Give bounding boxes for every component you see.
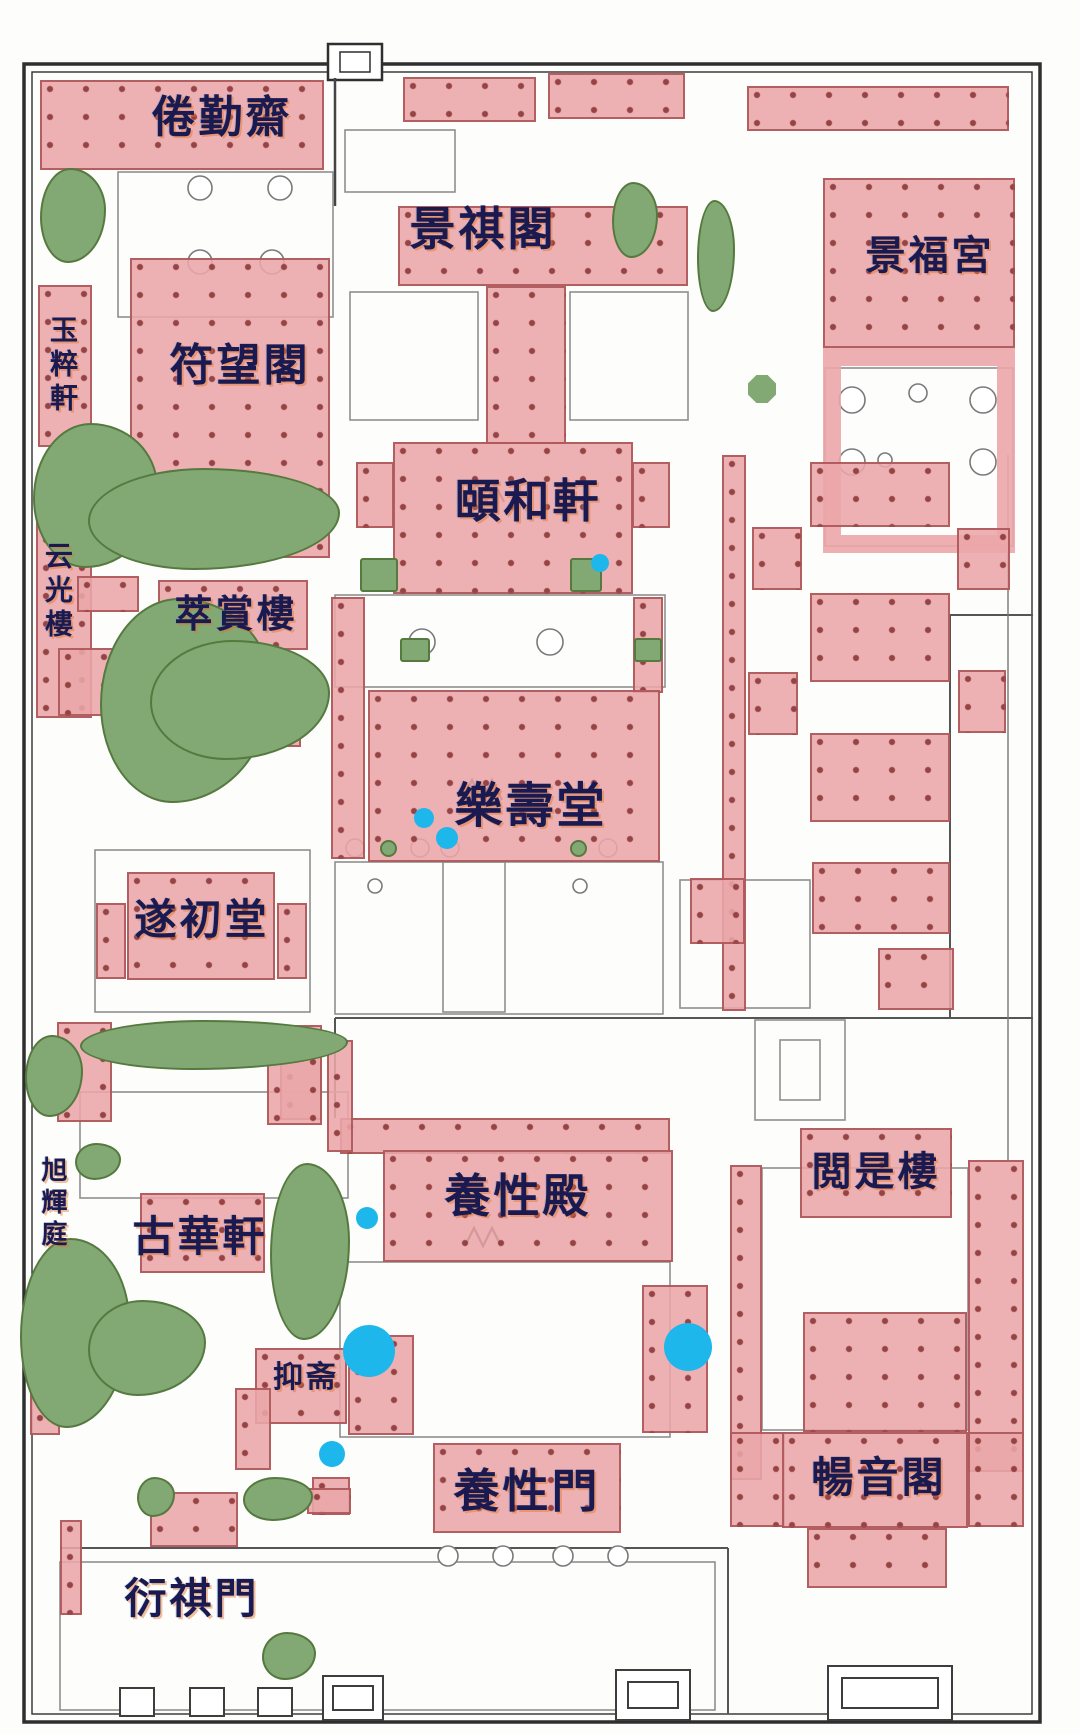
bld-yihe-west-wing [356,462,394,528]
bld-suichu-east [277,903,307,979]
bld-east-side-1 [752,527,802,590]
garden-leshou-e [634,638,662,662]
bld-changyinge-tower [803,1312,967,1432]
bld-small-south [307,1488,351,1514]
bld-east-hall-2 [810,593,950,682]
garden-nw-corner [40,168,106,263]
label-xuhuiting: 旭輝庭 [39,1156,65,1252]
bld-east-side-5 [690,878,745,944]
bld-east-side-4 [958,670,1006,733]
bld-east-side-6 [878,948,954,1010]
map-canvas: 倦勤齋景祺閣景福宮符望閣玉粹軒頤和軒云光樓萃賞樓樂壽堂遂初堂旭輝庭古華軒養性殿閲… [0,0,1080,1734]
bld-nw-corridor [327,1040,353,1152]
garden-sw-mass-b [88,1300,206,1396]
label-fuwangge: 符望閣 [170,344,311,388]
marker-yizhai-large [343,1325,395,1377]
garden-dot-e [570,840,587,857]
bld-theater-frame-east [968,1160,1024,1472]
marker-yihexuan [591,554,609,572]
label-yangxingdian: 養性殿 [445,1173,592,1219]
marker-leshou-1 [414,808,434,828]
bld-east-hall-4 [812,862,950,934]
label-yunguanglou: 云光樓 [43,541,71,643]
label-suichutang: 遂初堂 [134,899,269,941]
bld-top-band-a [403,77,536,122]
label-yizhai: 抑斋 [273,1363,339,1393]
bld-yangxing-band [340,1118,670,1154]
bld-west-strip-2 [60,1520,82,1615]
label-yueshilou: 閲是樓 [812,1152,941,1192]
label-leshoutang: 樂壽堂 [454,782,607,830]
label-yangxingmen: 養性門 [454,1468,601,1514]
bld-yihe-east-wing [632,462,670,528]
label-jingqige: 景祺閣 [410,206,557,252]
garden-mid-strip [270,1163,350,1340]
garden-small-3 [75,1143,121,1180]
label-yucuixuan: 玉粹軒 [48,315,76,417]
bld-theater-frame-west2 [730,1432,785,1527]
marker-yizhai-small [319,1441,345,1467]
bld-changyin-south [807,1528,947,1588]
bld-cuishang-annex [77,576,139,612]
bld-top-band-b [548,73,685,119]
bld-suichu-west [96,903,126,979]
bld-east-hall-1 [810,462,950,527]
garden-small-2 [243,1477,313,1521]
marker-yangxing-west [356,1207,378,1229]
bld-west-corridor [331,597,365,859]
marker-east-large [664,1323,712,1371]
garden-court-w [360,558,398,592]
bld-top-band-right [747,86,1009,131]
garden-tree [262,1632,316,1680]
bld-leshoutang [368,690,660,862]
label-jingfugong: 景福宮 [866,236,995,276]
label-cuishanglou: 萃賞樓 [174,595,297,633]
bld-east-side-3 [748,672,798,735]
label-changyinge: 暢音閣 [811,1457,946,1499]
bld-east-side-2 [957,528,1010,590]
bld-east-hall-3 [810,733,950,822]
garden-rockery-b [150,640,330,760]
label-juanqinzhai: 倦勤齋 [152,96,293,140]
map-overlay: 倦勤齋景祺閣景福宮符望閣玉粹軒頤和軒云光樓萃賞樓樂壽堂遂初堂旭輝庭古華軒養性殿閲… [0,0,1080,1734]
bld-yizhai-west [235,1388,271,1470]
label-guhuaxuan: 古華軒 [132,1216,267,1258]
label-yanqimen: 衍祺門 [124,1578,259,1620]
garden-octagon [748,375,776,403]
garden-leshou-w [400,638,430,662]
garden-top-right [697,200,735,312]
garden-dot-w [380,840,397,857]
bld-jingqige-neck [486,286,566,444]
bld-theater-frame-east2 [968,1432,1024,1527]
label-yihexuan: 頤和軒 [455,478,602,524]
